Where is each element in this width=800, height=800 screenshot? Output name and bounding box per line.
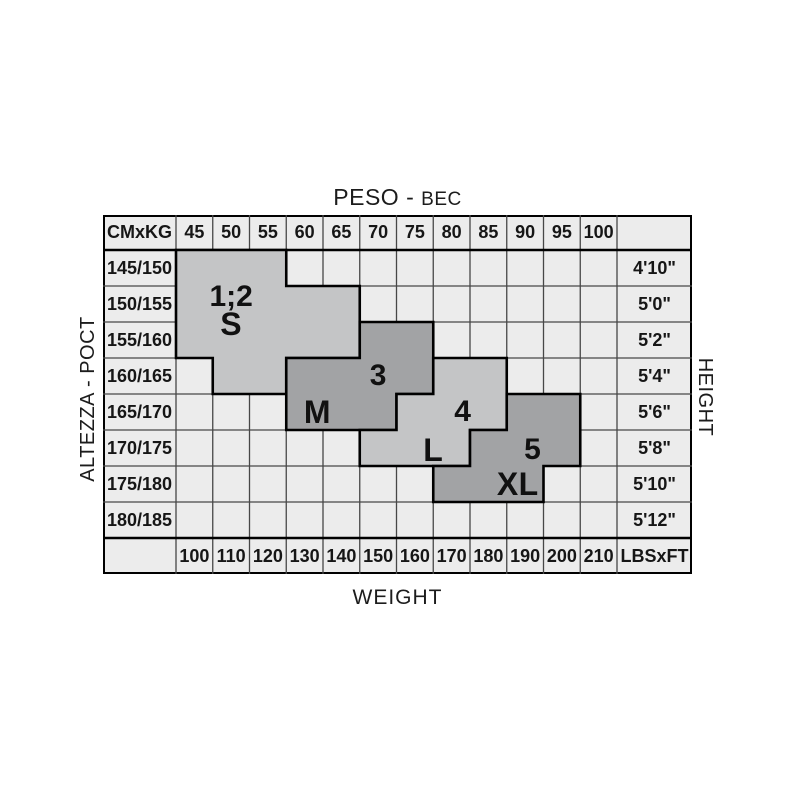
weight-kg-header-cell: 95 (544, 215, 581, 250)
grid-and-regions (103, 215, 692, 574)
weight-lbs-cell: 140 (323, 538, 360, 574)
size-label-l-letter: L (423, 434, 443, 466)
height-cm-cell: 180/185 (103, 502, 176, 538)
size-label-xl-letter: XL (497, 468, 539, 500)
height-ft-cell: 5'6" (617, 394, 692, 430)
weight-kg-header-cell: 70 (360, 215, 397, 250)
height-ft-cell: 5'8" (617, 430, 692, 466)
weight-kg-header-cell: 100 (580, 215, 617, 250)
weight-lbs-cell: 170 (433, 538, 470, 574)
weight-lbs-cell: 150 (360, 538, 397, 574)
weight-lbs-cell: 200 (544, 538, 581, 574)
weight-kg-header-cell: 90 (507, 215, 544, 250)
weight-lbs-cell: 210 (580, 538, 617, 574)
corner-cmxkg-cell: CMxKG (103, 215, 176, 250)
height-ft-cell: 5'0" (617, 286, 692, 322)
height-cm-cell: 170/175 (103, 430, 176, 466)
weight-kg-header-cell: 65 (323, 215, 360, 250)
height-cm-cell: 145/150 (103, 250, 176, 286)
weight-lbs-cell: 160 (397, 538, 434, 574)
weight-axis-label: WEIGHT (103, 586, 692, 610)
size-label-l-num: 4 (454, 397, 471, 427)
weight-lbs-cell: 190 (507, 538, 544, 574)
weight-kg-header-cell: 75 (397, 215, 434, 250)
weight-kg-header-cell: 85 (470, 215, 507, 250)
top-axis-title: PESO - BEC (103, 184, 692, 210)
height-cm-cell: 165/170 (103, 394, 176, 430)
altezza-axis-label: ALTEZZA - POCT (77, 249, 99, 549)
height-ft-cell: 5'12" (617, 502, 692, 538)
height-cm-cell: 175/180 (103, 466, 176, 502)
height-ft-cell: 5'4" (617, 358, 692, 394)
weight-lbs-cell: 180 (470, 538, 507, 574)
height-cm-cell: 155/160 (103, 322, 176, 358)
height-cm-cell: 160/165 (103, 358, 176, 394)
weight-lbs-cell: 110 (213, 538, 250, 574)
height-cm-cell: 150/155 (103, 286, 176, 322)
height-ft-cell: 5'2" (617, 322, 692, 358)
size-label-s-letter: S (220, 308, 242, 340)
height-ft-cell: 5'10" (617, 466, 692, 502)
size-label-xl-num: 5 (524, 435, 541, 465)
size-label-m-num: 3 (370, 361, 387, 391)
weight-lbs-cell: 120 (250, 538, 287, 574)
weight-kg-header-cell: 45 (176, 215, 213, 250)
weight-lbs-cell: 130 (286, 538, 323, 574)
weight-lbs-cell: 100 (176, 538, 213, 574)
top-axis-title-bec: BEC (421, 189, 462, 210)
corner-lbsxft-cell: LBSxFT (617, 538, 692, 574)
weight-kg-header-cell: 50 (213, 215, 250, 250)
weight-kg-header-cell: 60 (286, 215, 323, 250)
weight-kg-header-cell: 80 (433, 215, 470, 250)
size-label-m-letter: M (304, 396, 331, 428)
weight-kg-header-cell: 55 (250, 215, 287, 250)
size-chart: PESO - BEC CMxKG455055606570758085909510… (0, 0, 800, 800)
height-axis-label: HEIGHT (696, 297, 716, 497)
top-axis-title-peso: PESO - (333, 184, 421, 210)
size-table: CMxKG4550556065707580859095100145/150150… (103, 215, 692, 574)
height-ft-cell: 4'10" (617, 250, 692, 286)
